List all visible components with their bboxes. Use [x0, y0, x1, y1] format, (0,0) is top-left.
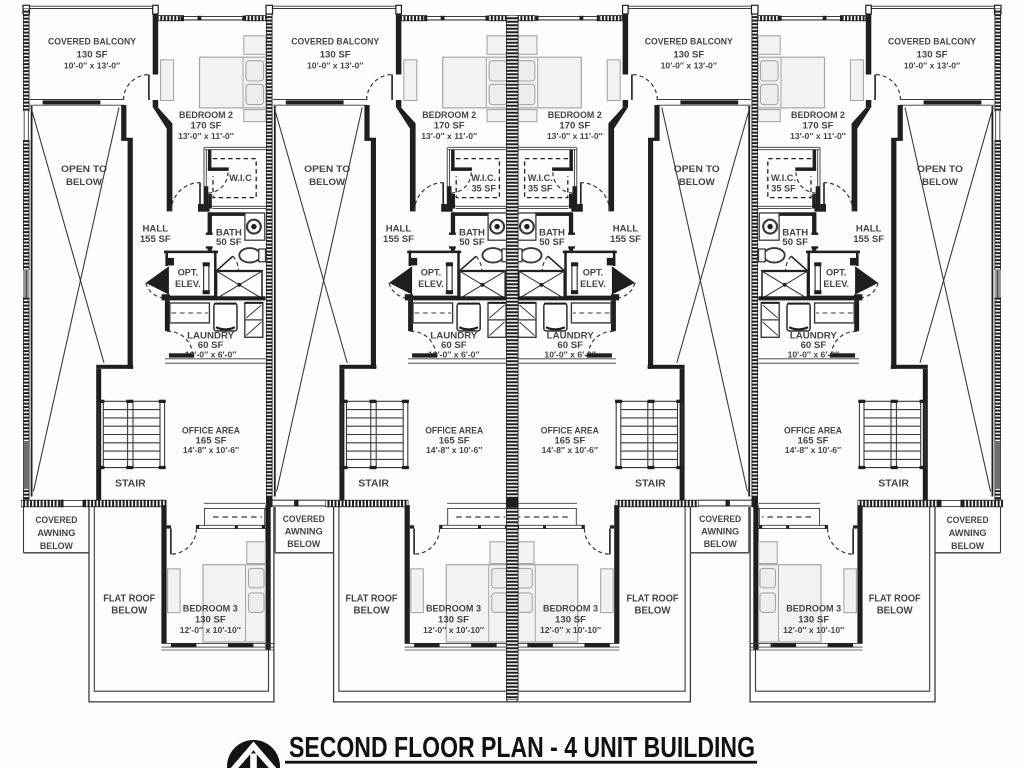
svg-text:12′-0″ x 10′-10″: 12′-0″ x 10′-10″	[540, 625, 601, 635]
svg-text:170 SF: 170 SF	[434, 121, 465, 132]
svg-text:14′-8″ x 10′-6″: 14′-8″ x 10′-6″	[426, 445, 482, 455]
svg-text:BELOW: BELOW	[40, 541, 73, 551]
svg-text:BEDROOM 2: BEDROOM 2	[422, 110, 476, 121]
svg-text:FLAT ROOF: FLAT ROOF	[103, 593, 155, 604]
svg-text:FLAT ROOF: FLAT ROOF	[869, 593, 921, 604]
svg-text:STAIR: STAIR	[635, 478, 666, 490]
svg-text:W.I.C.: W.I.C.	[528, 173, 553, 183]
svg-text:35 SF: 35 SF	[471, 183, 496, 193]
svg-text:STAIR: STAIR	[878, 478, 909, 490]
svg-text:14′-8″ x 10′-6″: 14′-8″ x 10′-6″	[785, 445, 841, 455]
svg-text:10′-0″ x 13′-0″: 10′-0″ x 13′-0″	[661, 60, 717, 70]
svg-text:AWNING: AWNING	[949, 528, 987, 538]
svg-text:AWNING: AWNING	[701, 526, 739, 536]
svg-text:10′-0″ x 13′-0″: 10′-0″ x 13′-0″	[307, 60, 363, 70]
svg-text:COVERED: COVERED	[283, 514, 325, 524]
svg-text:BELOW: BELOW	[111, 605, 147, 616]
svg-text:14′-8″ x 10′-6″: 14′-8″ x 10′-6″	[542, 445, 598, 455]
svg-text:BELOW: BELOW	[635, 605, 671, 616]
svg-text:BELOW: BELOW	[922, 177, 959, 188]
svg-text:STAIR: STAIR	[358, 478, 389, 490]
svg-text:ELEV.: ELEV.	[418, 279, 444, 289]
svg-text:ELEV.: ELEV.	[175, 279, 201, 289]
svg-text:BEDROOM 2: BEDROOM 2	[179, 110, 233, 121]
svg-text:SECOND FLOOR PLAN - 4 UNIT BUI: SECOND FLOOR PLAN - 4 UNIT BUILDING	[289, 732, 755, 764]
svg-text:AWNING: AWNING	[37, 528, 75, 538]
svg-text:13′-0″ x 11′-0″: 13′-0″ x 11′-0″	[547, 131, 603, 141]
svg-text:13′-0″ x 11′-0″: 13′-0″ x 11′-0″	[790, 131, 846, 141]
svg-text:12′-0″ x 10′-10″: 12′-0″ x 10′-10″	[180, 625, 241, 635]
svg-text:W.I.C: W.I.C	[229, 173, 252, 183]
svg-text:COVERED: COVERED	[947, 515, 989, 525]
svg-text:BELOW: BELOW	[679, 177, 716, 188]
svg-text:12′-0″ x 10′-10″: 12′-0″ x 10′-10″	[783, 625, 844, 635]
svg-text:BELOW: BELOW	[877, 605, 913, 616]
svg-text:155 SF: 155 SF	[610, 234, 641, 245]
svg-text:130 SF: 130 SF	[320, 50, 351, 61]
svg-text:BEDROOM 3: BEDROOM 3	[183, 604, 238, 615]
svg-text:HALL: HALL	[856, 223, 882, 234]
svg-text:COVERED: COVERED	[699, 514, 741, 524]
svg-text:170 SF: 170 SF	[191, 121, 222, 132]
svg-text:BEDROOM 3: BEDROOM 3	[786, 604, 841, 615]
svg-text:14′-8″ x 10′-6″: 14′-8″ x 10′-6″	[183, 445, 239, 455]
svg-text:W.I.C.: W.I.C.	[471, 173, 496, 183]
svg-text:OPT.: OPT.	[178, 268, 198, 278]
svg-text:130 SF: 130 SF	[673, 50, 704, 61]
svg-text:50 SF: 50 SF	[459, 237, 485, 248]
svg-text:W.I.C.: W.I.C.	[771, 173, 796, 183]
svg-text:BEDROOM 3: BEDROOM 3	[543, 604, 598, 615]
svg-text:155 SF: 155 SF	[853, 234, 884, 245]
svg-text:10′-0″ x 13′-0″: 10′-0″ x 13′-0″	[904, 60, 960, 70]
svg-text:OPEN TO: OPEN TO	[61, 164, 108, 175]
svg-text:170 SF: 170 SF	[559, 121, 590, 132]
svg-text:ELEV.: ELEV.	[580, 279, 606, 289]
svg-text:155 SF: 155 SF	[140, 234, 171, 245]
svg-text:OPT.: OPT.	[583, 268, 603, 278]
svg-text:COVERED BALCONY: COVERED BALCONY	[291, 37, 380, 48]
svg-text:130 SF: 130 SF	[798, 614, 829, 625]
svg-text:50 SF: 50 SF	[539, 237, 565, 248]
svg-text:130 SF: 130 SF	[77, 50, 108, 61]
svg-text:BELOW: BELOW	[287, 539, 320, 549]
svg-text:BELOW: BELOW	[704, 539, 737, 549]
svg-text:BELOW: BELOW	[309, 177, 346, 188]
svg-text:130 SF: 130 SF	[195, 614, 226, 625]
svg-text:BEDROOM 2: BEDROOM 2	[791, 110, 845, 121]
svg-text:50 SF: 50 SF	[216, 237, 242, 248]
svg-text:COVERED BALCONY: COVERED BALCONY	[48, 37, 137, 48]
svg-text:130 SF: 130 SF	[555, 614, 586, 625]
svg-text:BEDROOM 3: BEDROOM 3	[426, 604, 481, 615]
svg-text:HALL: HALL	[386, 223, 412, 234]
svg-text:170 SF: 170 SF	[803, 121, 834, 132]
svg-text:FLAT ROOF: FLAT ROOF	[627, 593, 679, 604]
svg-text:OPEN TO: OPEN TO	[304, 164, 351, 175]
svg-text:10′-0″ x 13′-0″: 10′-0″ x 13′-0″	[64, 60, 120, 70]
svg-text:FLAT ROOF: FLAT ROOF	[346, 593, 398, 604]
svg-text:130 SF: 130 SF	[438, 614, 469, 625]
svg-text:STAIR: STAIR	[115, 478, 146, 490]
svg-text:12′-0″ x 10′-10″: 12′-0″ x 10′-10″	[423, 625, 484, 635]
svg-text:COVERED: COVERED	[35, 515, 77, 525]
svg-text:COVERED BALCONY: COVERED BALCONY	[888, 37, 977, 48]
svg-text:ELEV.: ELEV.	[823, 279, 849, 289]
svg-text:BELOW: BELOW	[951, 541, 984, 551]
svg-text:130 SF: 130 SF	[917, 50, 948, 61]
svg-text:OPT.: OPT.	[421, 268, 441, 278]
svg-text:OPEN TO: OPEN TO	[674, 164, 721, 175]
svg-text:35 SF: 35 SF	[528, 183, 553, 193]
svg-text:BEDROOM 2: BEDROOM 2	[548, 110, 602, 121]
svg-text:155 SF: 155 SF	[383, 234, 414, 245]
svg-text:BELOW: BELOW	[354, 605, 390, 616]
svg-text:13′-0″ x 11′-0″: 13′-0″ x 11′-0″	[421, 131, 477, 141]
svg-text:35 SF: 35 SF	[771, 183, 796, 193]
svg-text:COVERED BALCONY: COVERED BALCONY	[645, 37, 734, 48]
svg-text:HALL: HALL	[613, 223, 639, 234]
svg-text:13′-0″ x 11′-0″: 13′-0″ x 11′-0″	[178, 131, 234, 141]
svg-text:50 SF: 50 SF	[782, 237, 808, 248]
svg-text:OPEN TO: OPEN TO	[917, 164, 964, 175]
svg-text:HALL: HALL	[143, 223, 169, 234]
svg-text:AWNING: AWNING	[285, 526, 323, 536]
svg-text:BELOW: BELOW	[66, 177, 103, 188]
svg-text:OPT.: OPT.	[826, 268, 846, 278]
